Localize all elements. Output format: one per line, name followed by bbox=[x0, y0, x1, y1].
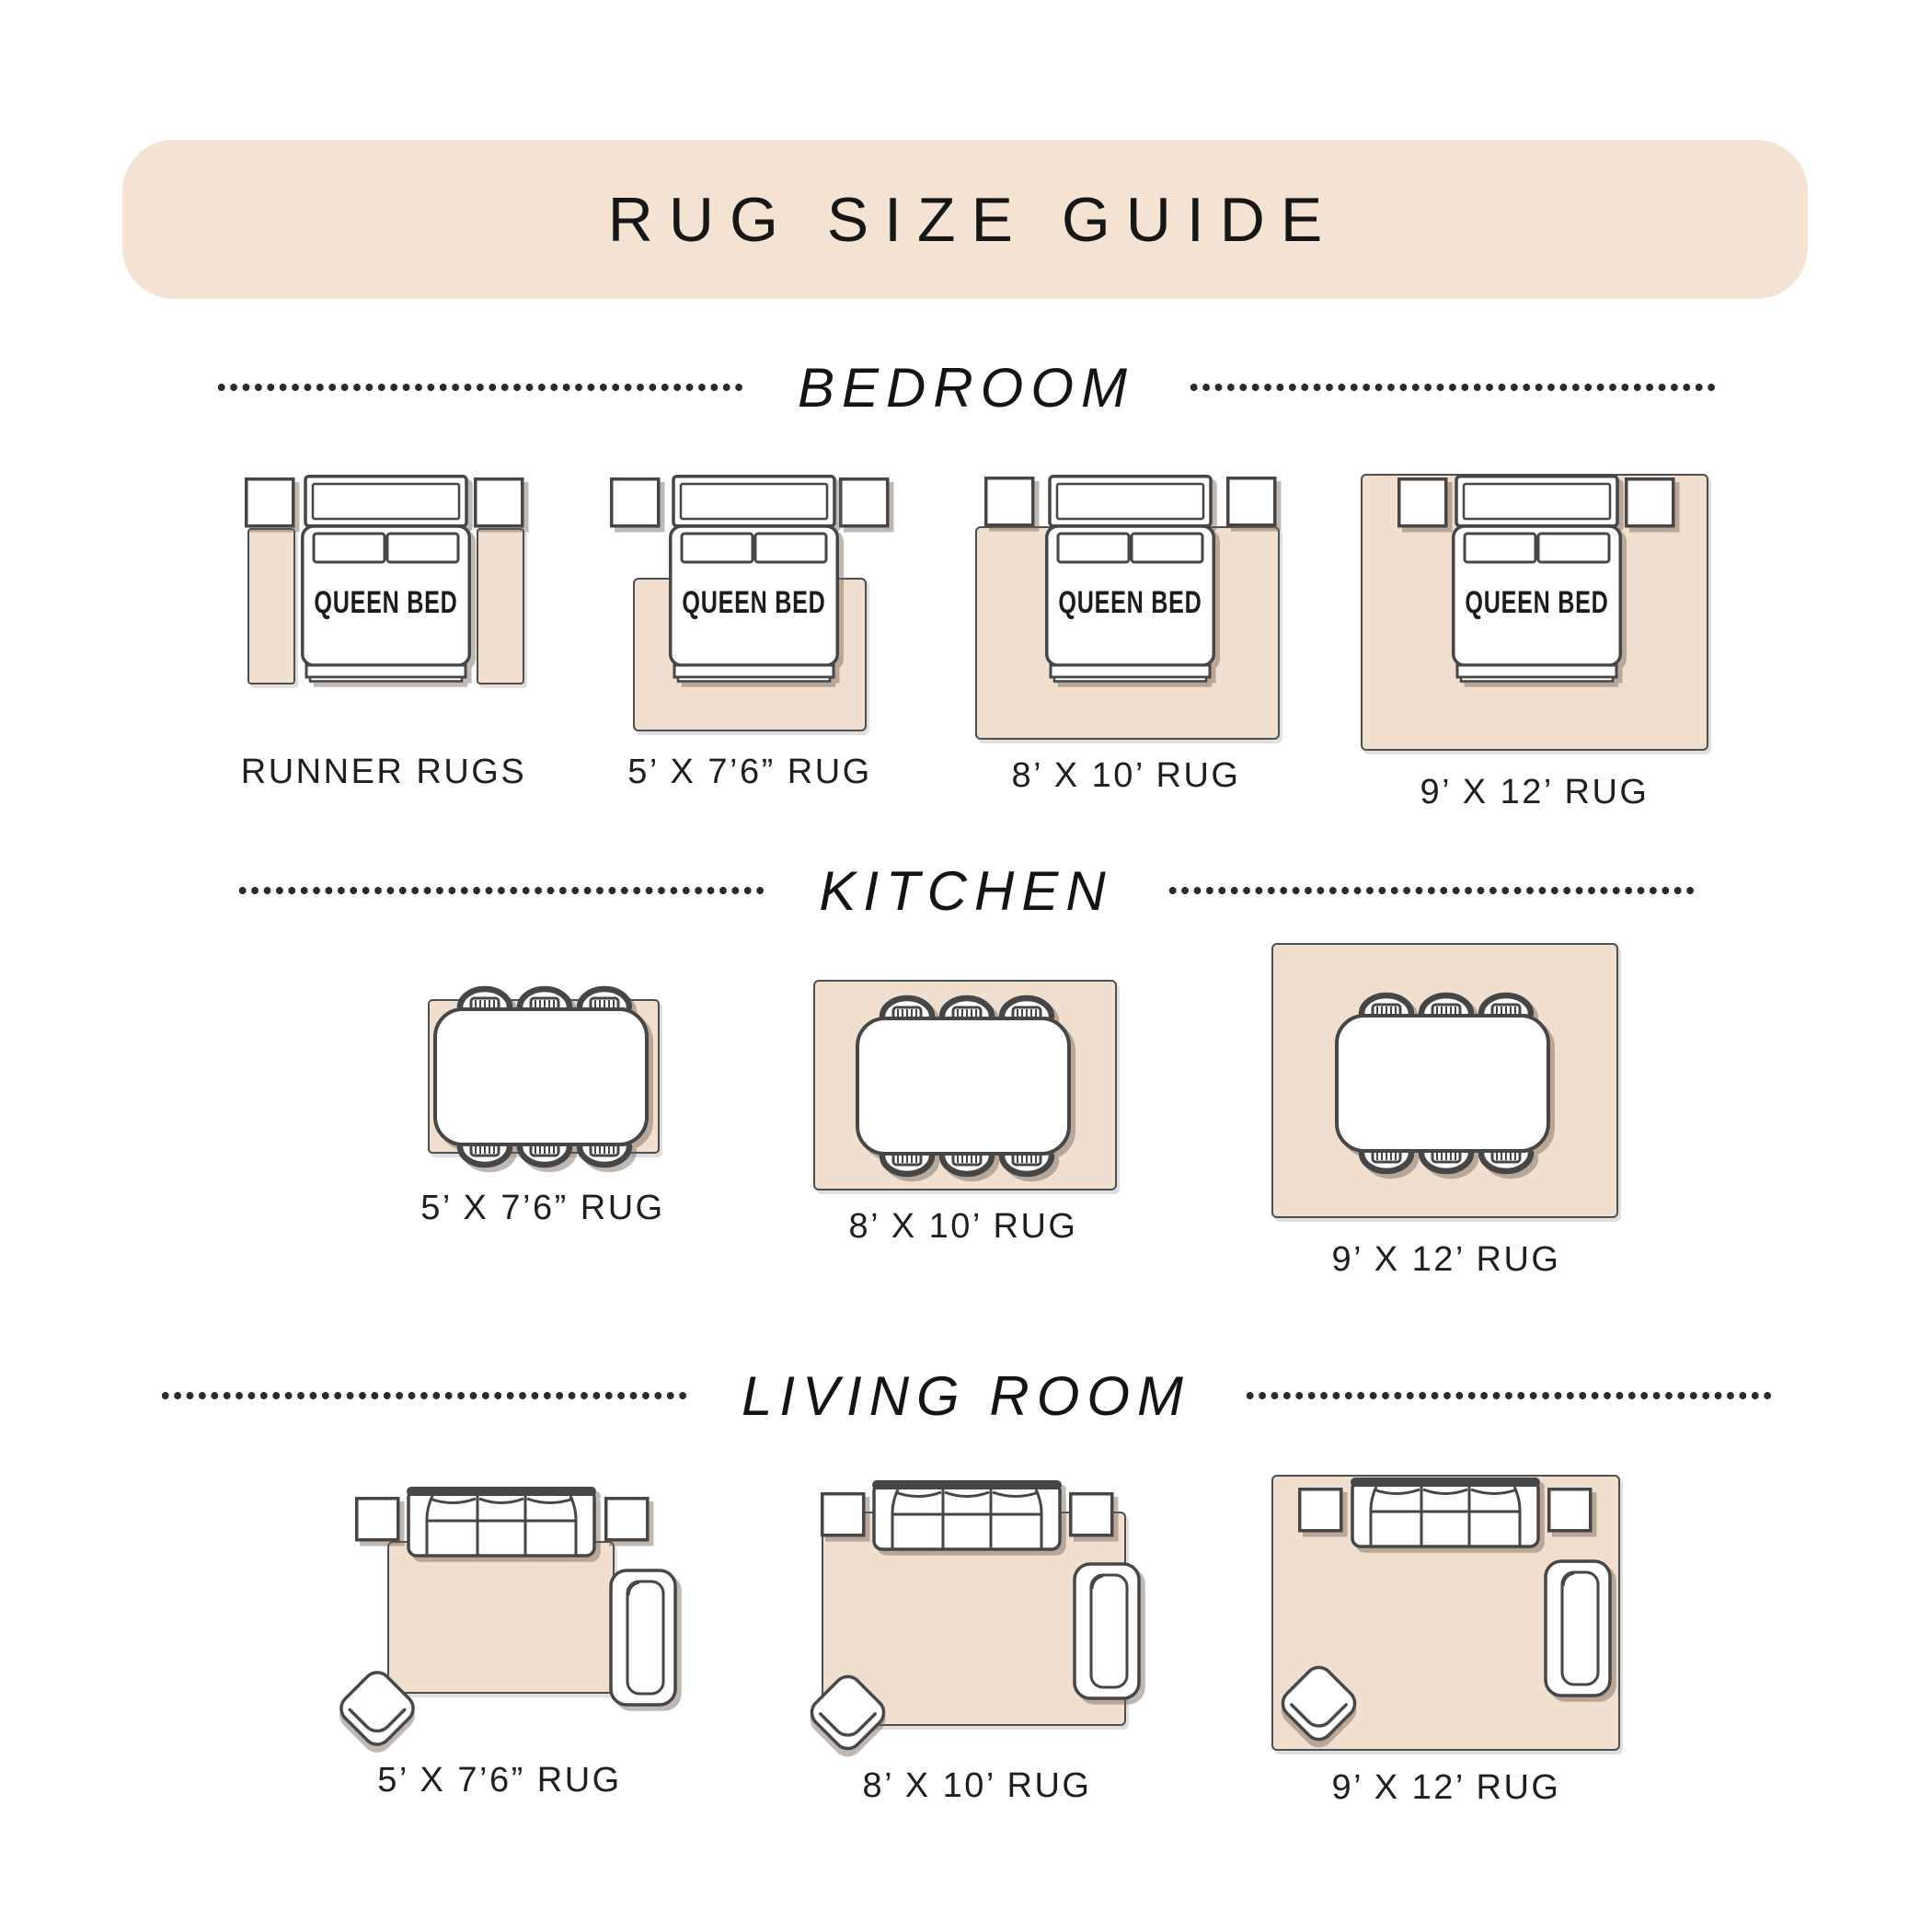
rug-size-label: 8’ X 10’ RUG bbox=[942, 756, 1310, 796]
runner-rug bbox=[477, 529, 523, 684]
dotted-divider bbox=[236, 883, 765, 898]
dotted-divider bbox=[1167, 883, 1696, 898]
armchair-illustration bbox=[1075, 1564, 1139, 1698]
section-title-living-room: LIVING ROOM bbox=[742, 1364, 1190, 1428]
queen-bed-illustration bbox=[1047, 477, 1214, 682]
rug-size-label: 8’ X 10’ RUG bbox=[779, 1207, 1147, 1247]
bedroom-diagram-9x12 bbox=[1360, 473, 1714, 758]
section-header-living-room: LIVING ROOM bbox=[0, 1359, 1932, 1432]
kitchen-diagram-8x10 bbox=[810, 975, 1127, 1201]
bedroom-diagram-runner-rugs bbox=[239, 473, 534, 694]
side-table bbox=[357, 1499, 398, 1540]
header-banner: RUG SIZE GUIDE bbox=[122, 140, 1808, 299]
queen-bed-illustration bbox=[303, 477, 470, 682]
rug-size-label: 9’ X 12’ RUG bbox=[1262, 1768, 1630, 1808]
dotted-divider bbox=[1188, 380, 1717, 395]
nightstand bbox=[1627, 479, 1673, 526]
rug-size-label: RUNNER RUGS bbox=[200, 753, 568, 792]
nightstand bbox=[247, 479, 293, 526]
rug-size-label: 5’ X 7’6” RUG bbox=[359, 1189, 727, 1228]
dotted-divider bbox=[1244, 1388, 1773, 1403]
nightstand bbox=[841, 479, 888, 526]
section-header-kitchen: KITCHEN bbox=[0, 854, 1932, 927]
dining-table-set-illustration bbox=[435, 989, 647, 1165]
rug-size-label: 5’ X 7’6” RUG bbox=[316, 1761, 684, 1800]
kitchen-diagram-9x12 bbox=[1270, 940, 1628, 1225]
bedroom-diagram-5x76 bbox=[607, 473, 902, 740]
sofa-illustration bbox=[407, 1487, 596, 1556]
dining-table-set-illustration bbox=[857, 998, 1069, 1174]
rug-size-label: 9’ X 12’ RUG bbox=[1351, 773, 1719, 812]
nightstand bbox=[476, 479, 523, 526]
kitchen-diagram-5x76 bbox=[423, 971, 690, 1182]
living-room-diagram-5x76 bbox=[329, 1472, 693, 1757]
page-title: RUG SIZE GUIDE bbox=[592, 184, 1338, 256]
side-table bbox=[1549, 1489, 1591, 1531]
nightstand bbox=[612, 479, 659, 526]
dotted-divider bbox=[159, 1388, 688, 1403]
rug-size-label: 8’ X 10’ RUG bbox=[793, 1766, 1161, 1806]
section-header-bedroom: BEDROOM bbox=[0, 351, 1932, 424]
runner-rug bbox=[248, 529, 294, 684]
side-table bbox=[1300, 1489, 1341, 1531]
side-table bbox=[1071, 1494, 1112, 1535]
rug-size-label: 5’ X 7’6” RUG bbox=[566, 753, 934, 792]
dotted-divider bbox=[215, 380, 744, 395]
queen-bed-illustration bbox=[671, 477, 838, 682]
section-title-kitchen: KITCHEN bbox=[819, 859, 1112, 923]
sofa-illustration bbox=[872, 1480, 1062, 1549]
section-title-bedroom: BEDROOM bbox=[798, 356, 1134, 420]
side-table bbox=[822, 1494, 864, 1535]
living-room-diagram-8x10 bbox=[799, 1470, 1157, 1760]
armchair-illustration bbox=[1546, 1561, 1610, 1696]
living-room-diagram-9x12 bbox=[1268, 1470, 1628, 1757]
side-table bbox=[606, 1499, 648, 1540]
sofa-illustration bbox=[1351, 1478, 1540, 1547]
rug-size-guide-infographic: QUEEN BED bbox=[0, 0, 1932, 1932]
nightstand bbox=[1399, 479, 1446, 526]
queen-bed-illustration bbox=[1454, 477, 1621, 682]
armchair-illustration bbox=[611, 1570, 675, 1705]
rug-size-label: 9’ X 12’ RUG bbox=[1262, 1240, 1630, 1280]
nightstand bbox=[986, 478, 1033, 525]
bedroom-diagram-8x10 bbox=[973, 473, 1286, 749]
dining-table-set-illustration bbox=[1337, 995, 1548, 1171]
nightstand bbox=[1228, 478, 1275, 525]
area-rug bbox=[388, 1542, 614, 1693]
